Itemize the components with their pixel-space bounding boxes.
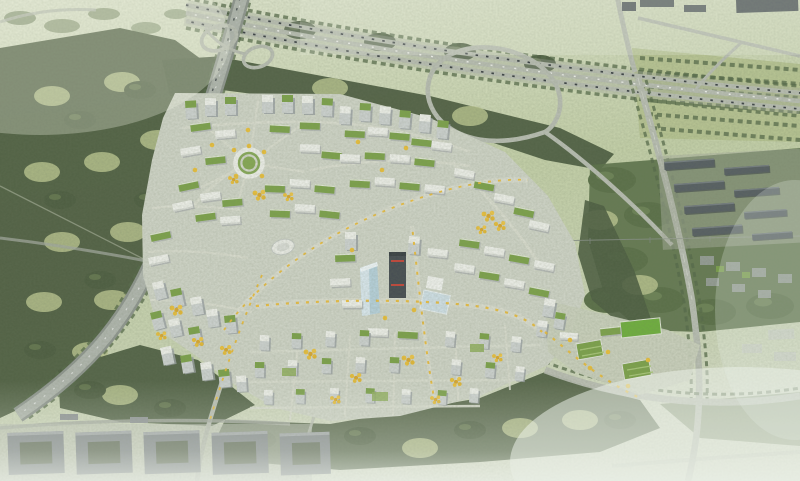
masterplan-render: Aerial masterplan rendering of a new gre…	[0, 0, 800, 481]
masterplan-svg: Aerial masterplan rendering of a new gre…	[0, 0, 800, 481]
